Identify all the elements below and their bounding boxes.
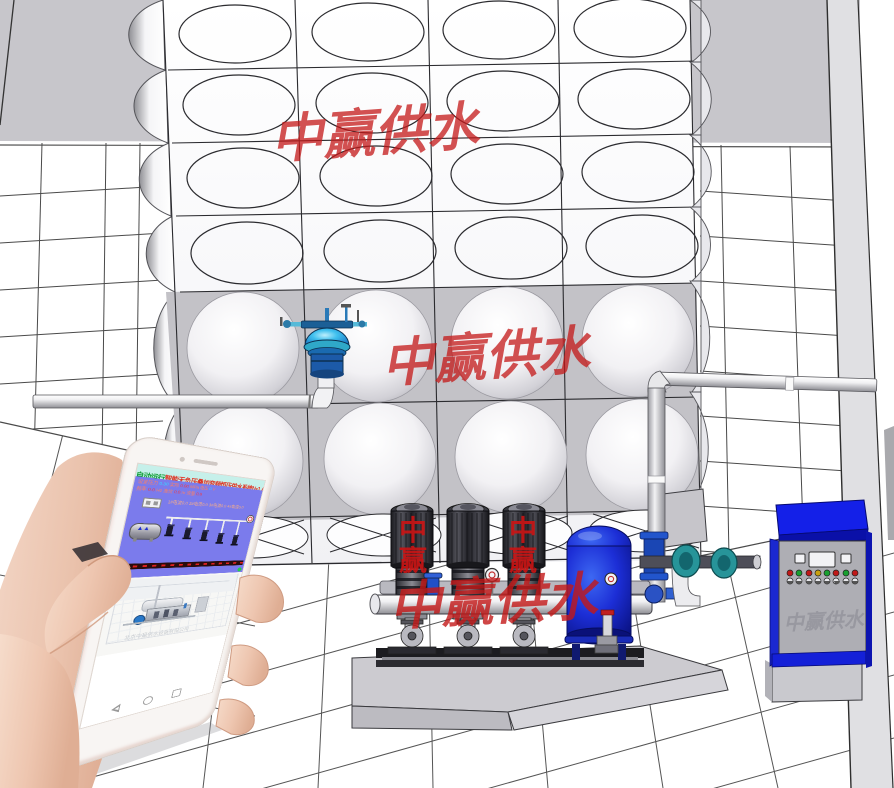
svg-text:中: 中 <box>509 515 537 547</box>
svg-text:赢: 赢 <box>399 544 427 577</box>
svg-text:中赢供水: 中赢供水 <box>388 568 603 637</box>
svg-text:中赢供水: 中赢供水 <box>783 608 866 635</box>
svg-text:中: 中 <box>399 515 427 547</box>
